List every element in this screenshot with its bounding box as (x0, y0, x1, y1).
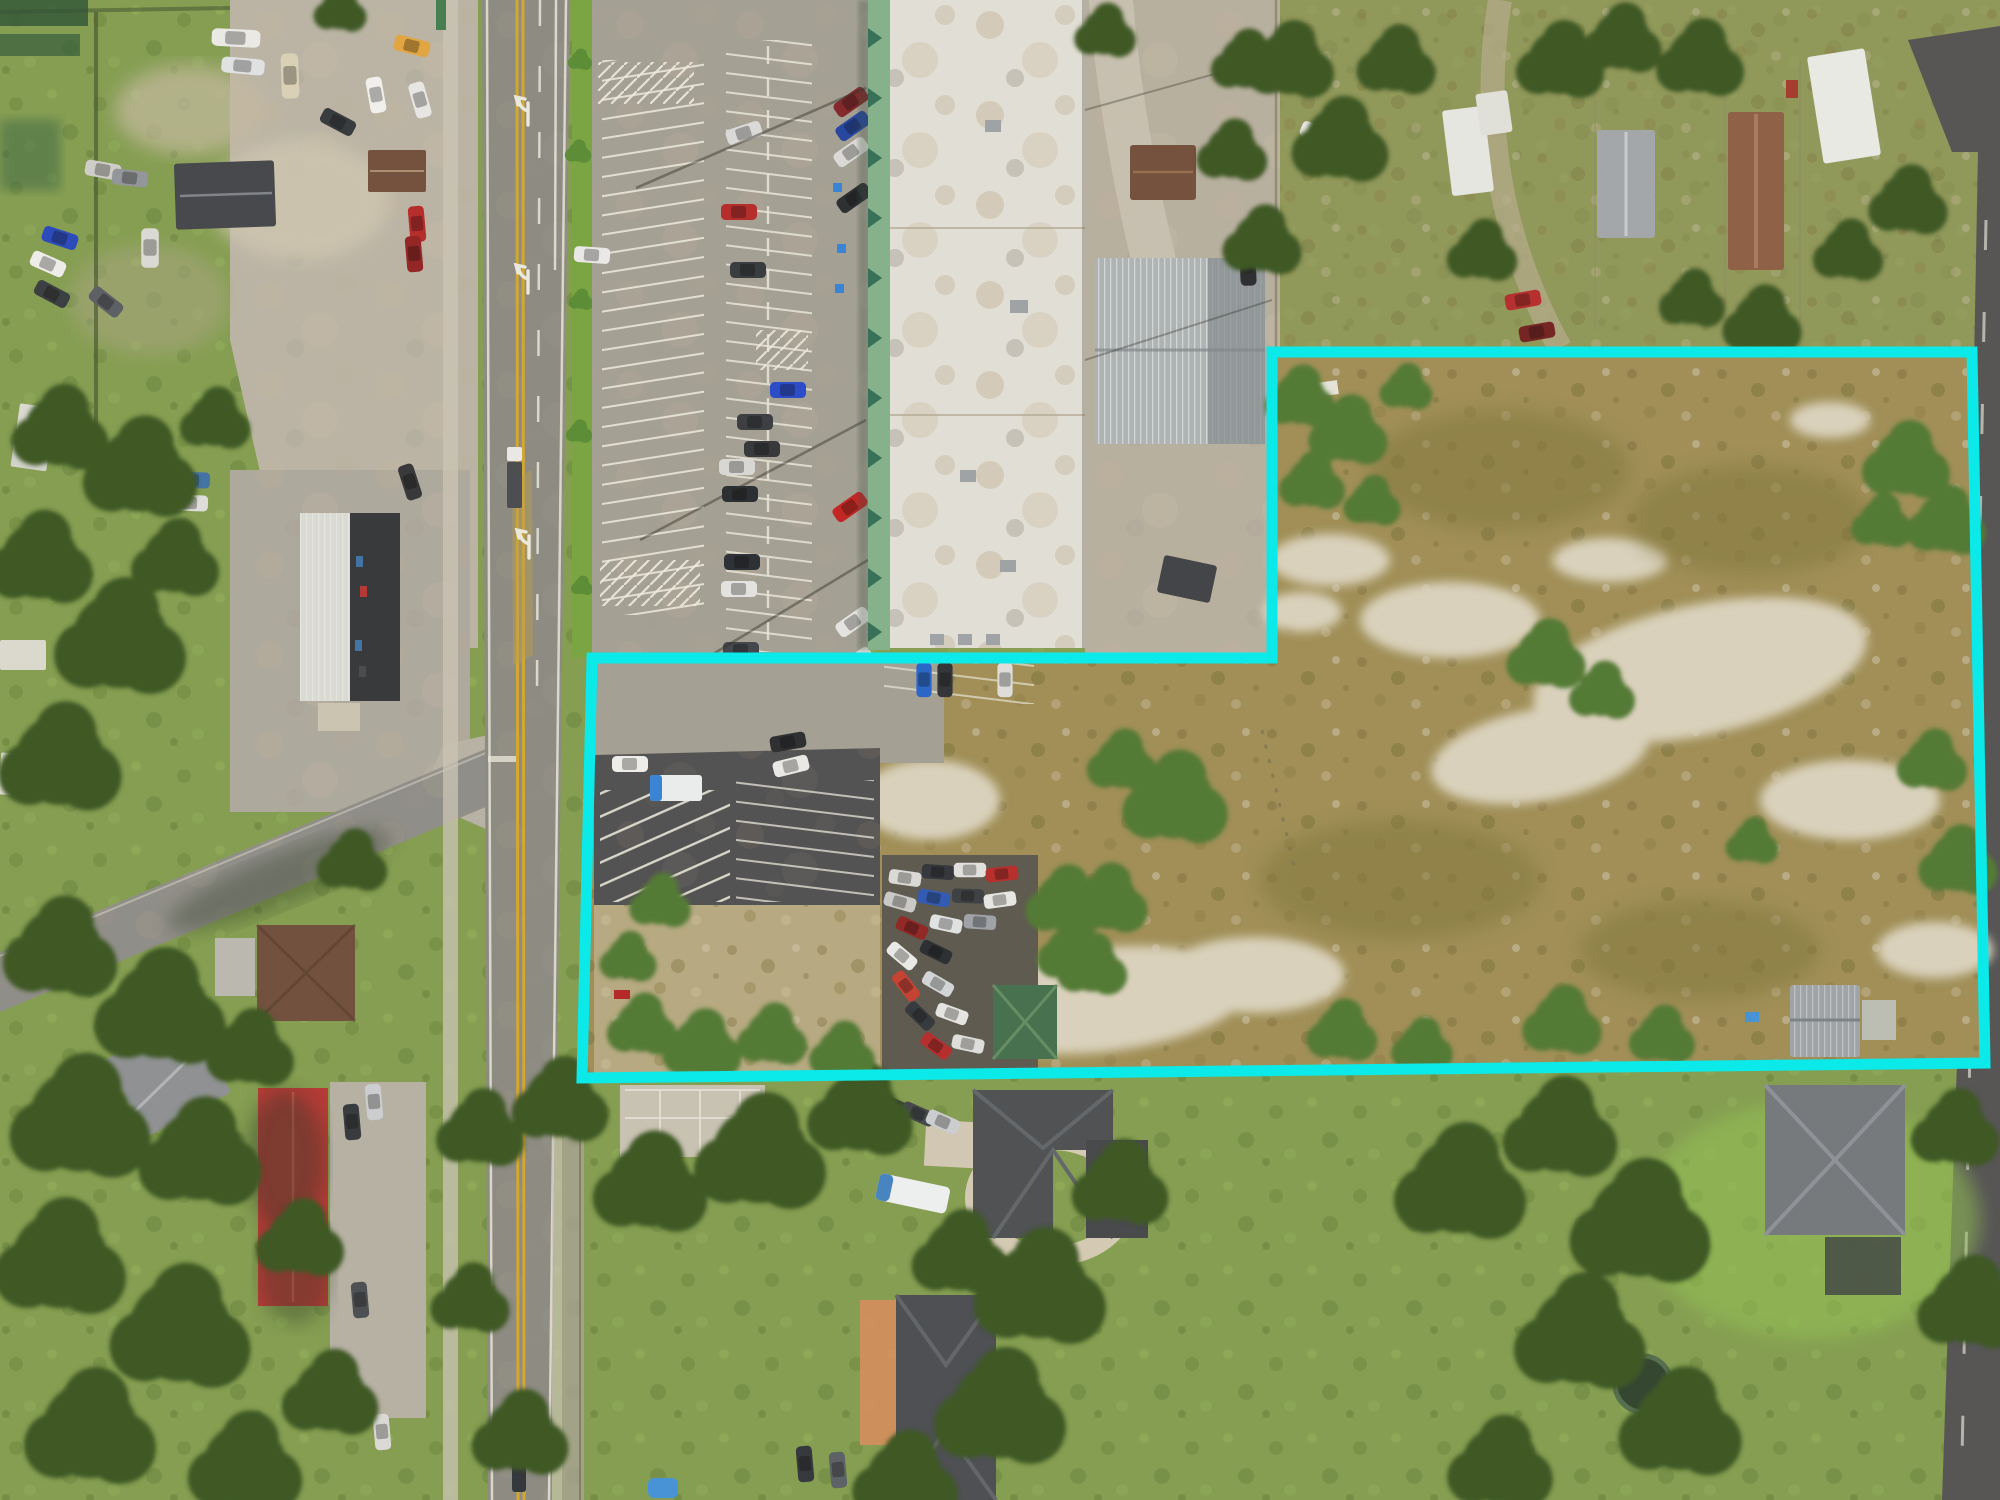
aerial-photo-canvas (0, 0, 2000, 1500)
aerial-photo (0, 0, 2000, 1500)
light-wash (0, 0, 2000, 1500)
